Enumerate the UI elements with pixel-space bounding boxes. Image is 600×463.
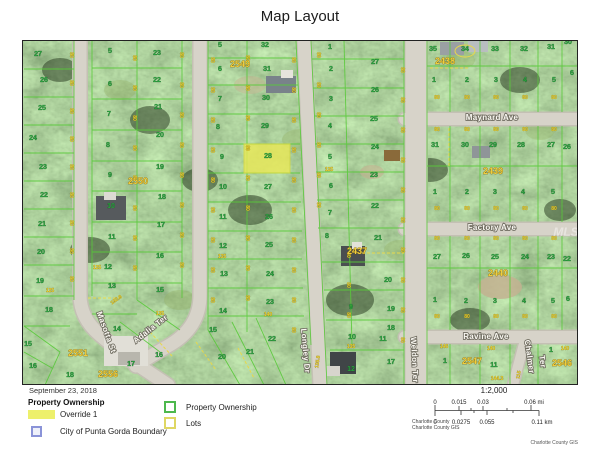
dimension-label: 135 bbox=[347, 344, 356, 350]
scalebar-ticks bbox=[435, 405, 539, 416]
parcel-number: 7 bbox=[218, 96, 222, 103]
parcel-number: 3 bbox=[494, 77, 498, 84]
lot-width-mark: 80 bbox=[209, 267, 215, 273]
parcel-number: 7 bbox=[107, 111, 111, 118]
dimension-label: 146 bbox=[440, 344, 449, 350]
parcel-number: 4 bbox=[523, 77, 527, 84]
lot-width-mark: 80 bbox=[551, 95, 557, 101]
parcel-number: 24 bbox=[521, 254, 529, 261]
lot-width-mark: 80 bbox=[522, 127, 528, 133]
parcel-number: 31 bbox=[263, 66, 271, 73]
parcel-number: 20 bbox=[218, 354, 226, 361]
parcel-number: 33 bbox=[491, 46, 499, 53]
lot-width-mark: 80 bbox=[209, 237, 215, 243]
property-ownership-swatch bbox=[164, 401, 176, 413]
lot-width-mark: 80 bbox=[244, 175, 250, 181]
lot-width-mark: 80 bbox=[68, 136, 74, 142]
lot-width-mark: 80 bbox=[399, 97, 405, 103]
lot-width-mark: 80 bbox=[493, 127, 499, 133]
parcel-number: 8 bbox=[216, 124, 220, 131]
lot-width-mark: 80 bbox=[345, 312, 351, 318]
parcel-number: 4 bbox=[521, 189, 525, 196]
lot-width-mark: 80 bbox=[244, 235, 250, 241]
parcel-number: 15 bbox=[24, 341, 32, 348]
dimension-label: 140 bbox=[487, 346, 496, 352]
parcel-number: 34 bbox=[461, 46, 469, 53]
parcel-number: 8 bbox=[325, 233, 329, 240]
lot-width-mark: 80 bbox=[522, 314, 528, 320]
parcel-number: 1 bbox=[432, 77, 436, 84]
parcel-number: 24 bbox=[266, 271, 274, 278]
parcel-number: 10 bbox=[348, 334, 356, 341]
parcel-number: 1 bbox=[328, 44, 332, 51]
lot-width-mark: 80 bbox=[464, 206, 470, 212]
parcel-number: 30 bbox=[461, 142, 469, 149]
parcel-number: 16 bbox=[156, 253, 164, 260]
scale-ratio: 1:2,000 bbox=[481, 386, 508, 395]
lot-width-mark: 80 bbox=[290, 267, 296, 273]
parcel-number: 5 bbox=[328, 154, 332, 161]
parcel-number: 1 bbox=[443, 358, 447, 365]
lot-width-mark: 80 bbox=[290, 57, 296, 63]
lot-width-mark: 80 bbox=[434, 236, 440, 242]
parcel-number: 23 bbox=[370, 172, 378, 179]
lot-width-mark: 80 bbox=[178, 82, 184, 88]
override-swatch bbox=[28, 410, 55, 419]
parcel-number: 2 bbox=[464, 298, 468, 305]
lot-width-mark: 80 bbox=[68, 80, 74, 86]
credit-left: Charlotte County Charlotte County GIS bbox=[412, 419, 460, 432]
lot-width-mark: 80 bbox=[209, 147, 215, 153]
dimension-label: 125 bbox=[93, 265, 102, 271]
dimension-label: 125 bbox=[325, 167, 334, 173]
parcel-number: 31 bbox=[431, 142, 439, 149]
lot-width-mark: 80 bbox=[209, 117, 215, 123]
lots-label: Lots bbox=[186, 419, 201, 428]
watermark: MLS bbox=[553, 225, 578, 239]
parcel-number: 21 bbox=[38, 221, 46, 228]
lot-width-mark: 80 bbox=[209, 177, 215, 183]
parcel-number: 27 bbox=[264, 184, 272, 191]
block-number: 2549 bbox=[230, 59, 250, 69]
override-label: Override 1 bbox=[60, 410, 97, 419]
parcel-number: 21 bbox=[154, 104, 162, 111]
parcel-number: 19 bbox=[36, 278, 44, 285]
parcel-number: 23 bbox=[266, 299, 274, 306]
legend-title: Property Ownership bbox=[28, 398, 104, 407]
map-frame: 8080808080808080808080808080808080808080… bbox=[22, 40, 578, 385]
parcel-number: 17 bbox=[157, 222, 165, 229]
lot-width-mark: 80 bbox=[551, 206, 557, 212]
parcel-number: 22 bbox=[268, 336, 276, 343]
lot-width-mark: 80 bbox=[315, 82, 321, 88]
parcel-number: 23 bbox=[153, 50, 161, 57]
lot-width-mark: 80 bbox=[290, 147, 296, 153]
parcel-number: 10 bbox=[107, 203, 115, 210]
lot-width-mark: 80 bbox=[178, 262, 184, 268]
parcel-number: 6 bbox=[329, 183, 333, 190]
credit-right: Charlotte County GIS bbox=[470, 440, 578, 446]
lot-width-mark: 80 bbox=[131, 55, 137, 61]
parcel-number: 4 bbox=[328, 123, 332, 130]
map-layout-page: Map Layout bbox=[0, 0, 600, 463]
lot-width-mark: 80 bbox=[315, 202, 321, 208]
parcel-number: 1 bbox=[433, 297, 437, 304]
lot-width-mark: 80 bbox=[434, 95, 440, 101]
punta-gorda-boundary-label: City of Punta Gorda Boundary bbox=[60, 427, 167, 436]
lot-width-mark: 80 bbox=[68, 52, 74, 58]
parcel-number: 17 bbox=[127, 361, 135, 368]
parcel-number: 26 bbox=[40, 77, 48, 84]
parcel-number: 5 bbox=[218, 42, 222, 49]
lot-width-mark: 80 bbox=[131, 85, 137, 91]
lot-width-mark: 80 bbox=[68, 248, 74, 254]
parcel-number: 6 bbox=[570, 70, 574, 77]
street-label: Ravine Ave bbox=[463, 332, 509, 341]
lot-width-mark: 80 bbox=[464, 236, 470, 242]
parcel-number: 5 bbox=[552, 77, 556, 84]
parcel-number: 13 bbox=[108, 283, 116, 290]
lot-width-mark: 80 bbox=[68, 220, 74, 226]
lot-width-mark: 80 bbox=[493, 236, 499, 242]
block-number: 2437 bbox=[347, 246, 367, 256]
lot-width-mark: 80 bbox=[493, 206, 499, 212]
parcel-number: 2 bbox=[465, 189, 469, 196]
dimension-label: 140 bbox=[561, 346, 570, 352]
scale-km-3: 0.11 km bbox=[532, 420, 553, 426]
lot-width-mark: 80 bbox=[493, 314, 499, 320]
lot-width-mark: 80 bbox=[178, 142, 184, 148]
lot-width-mark: 80 bbox=[244, 115, 250, 121]
parcel-number: 4 bbox=[522, 298, 526, 305]
parcel-number: 12 bbox=[104, 264, 112, 271]
parcel-number: 25 bbox=[370, 116, 378, 123]
lot-width-mark: 80 bbox=[178, 112, 184, 118]
parcel-number: 9 bbox=[349, 304, 353, 311]
block-number: 2551 bbox=[68, 348, 88, 358]
lot-width-mark: 80 bbox=[209, 297, 215, 303]
parcel-number: 7 bbox=[328, 210, 332, 217]
parcel-number: 21 bbox=[374, 235, 382, 242]
lot-width-mark: 80 bbox=[315, 52, 321, 58]
lot-width-mark: 80 bbox=[290, 237, 296, 243]
parcel-number: 18 bbox=[387, 325, 395, 332]
block-number: 2556 bbox=[98, 369, 118, 379]
parcel-number: 27 bbox=[371, 59, 379, 66]
lot-width-mark: 80 bbox=[244, 265, 250, 271]
parcel-number: 17 bbox=[387, 359, 395, 366]
parcel-number: 8 bbox=[106, 142, 110, 149]
parcel-number: 15 bbox=[209, 327, 217, 334]
lot-width-mark: 80 bbox=[345, 282, 351, 288]
parcel-number: 22 bbox=[153, 77, 161, 84]
parcel-number: 6 bbox=[566, 296, 570, 303]
lot-width-mark: 80 bbox=[131, 145, 137, 151]
map-svg: 8080808080808080808080808080808080808080… bbox=[22, 40, 578, 385]
parcel-number: 22 bbox=[563, 256, 571, 263]
parcel-number: 14 bbox=[113, 326, 121, 333]
parcel-number: 23 bbox=[39, 164, 47, 171]
parcel-number: 18 bbox=[66, 372, 74, 379]
block-number: 2439 bbox=[483, 166, 503, 176]
lot-width-mark: 80 bbox=[522, 236, 528, 242]
parcel-number: 27 bbox=[547, 142, 555, 149]
lot-width-mark: 80 bbox=[290, 327, 296, 333]
parcel-number: 12 bbox=[347, 366, 355, 373]
credit-left-line2: Charlotte County GIS bbox=[412, 425, 460, 431]
lot-width-mark: 80 bbox=[209, 57, 215, 63]
parcel-number: 21 bbox=[246, 349, 254, 356]
lot-width-mark: 80 bbox=[244, 295, 250, 301]
parcel-number: 16 bbox=[29, 363, 37, 370]
parcel-number: 35 bbox=[429, 46, 437, 53]
lot-width-mark: 80 bbox=[434, 206, 440, 212]
parcel-number: 26 bbox=[265, 214, 273, 221]
lot-width-mark: 80 bbox=[68, 276, 74, 282]
lot-width-mark: 80 bbox=[399, 337, 405, 343]
parcel-number: 28 bbox=[264, 153, 272, 160]
parcel-number: 3 bbox=[493, 189, 497, 196]
lot-width-mark: 80 bbox=[68, 192, 74, 198]
parcel-number: 30 bbox=[262, 95, 270, 102]
block-number: 2440 bbox=[488, 268, 508, 278]
lot-width-mark: 80 bbox=[399, 157, 405, 163]
parcel-number: 16 bbox=[155, 352, 163, 359]
lot-width-mark: 80 bbox=[290, 117, 296, 123]
lot-width-mark: 80 bbox=[131, 205, 137, 211]
parcel-number: 24 bbox=[371, 144, 379, 151]
parcel-number: 15 bbox=[156, 287, 164, 294]
block-number: 2550 bbox=[128, 176, 148, 186]
parcel-number: 26 bbox=[371, 87, 379, 94]
parcel-number: 6 bbox=[108, 81, 112, 88]
lot-width-mark: 80 bbox=[399, 127, 405, 133]
scale-mi-2: 0.03 bbox=[477, 400, 489, 406]
parcel-number: 11 bbox=[219, 214, 227, 221]
parcel-number: 9 bbox=[108, 172, 112, 179]
lot-width-mark: 80 bbox=[399, 217, 405, 223]
property-ownership-label: Property Ownership bbox=[186, 403, 257, 412]
lot-width-mark: 80 bbox=[131, 265, 137, 271]
parcel-number: 20 bbox=[384, 277, 392, 284]
scale-mi-1: 0.015 bbox=[451, 400, 467, 406]
lot-width-mark: 80 bbox=[399, 187, 405, 193]
lot-width-mark: 80 bbox=[290, 207, 296, 213]
parcel-number: 19 bbox=[156, 164, 164, 171]
lot-width-mark: 80 bbox=[209, 87, 215, 93]
lot-width-mark: 80 bbox=[178, 202, 184, 208]
parcel-number: 19 bbox=[387, 306, 395, 313]
street-label: Maynard Ave bbox=[466, 113, 519, 122]
dimension-label: 135 bbox=[218, 254, 227, 260]
lot-width-mark: 80 bbox=[244, 145, 250, 151]
parcel-number: 3 bbox=[493, 298, 497, 305]
lot-width-mark: 80 bbox=[315, 142, 321, 148]
parcel-number: 32 bbox=[261, 42, 269, 49]
lot-width-mark: 80 bbox=[522, 206, 528, 212]
parcel-number: 5 bbox=[108, 48, 112, 55]
street-label: Ter bbox=[537, 355, 548, 369]
lot-width-mark: 80 bbox=[209, 207, 215, 213]
punta-gorda-boundary-swatch bbox=[31, 426, 42, 437]
parcel-number: 31 bbox=[547, 44, 555, 51]
parcel-number: 11 bbox=[108, 234, 116, 241]
lot-width-mark: 80 bbox=[434, 127, 440, 133]
parcel-number: 26 bbox=[462, 253, 470, 260]
parcel-number: 1 bbox=[549, 347, 553, 354]
lot-width-mark: 80 bbox=[315, 172, 321, 178]
parcel-number: 3 bbox=[329, 96, 333, 103]
lot-width-mark: 80 bbox=[290, 87, 296, 93]
parcel-number: 22 bbox=[371, 203, 379, 210]
street-label: Factory Ave bbox=[468, 223, 517, 232]
dimension-label: 125 bbox=[46, 288, 55, 294]
lot-width-mark: 80 bbox=[315, 112, 321, 118]
lot-width-mark: 80 bbox=[244, 85, 250, 91]
parcel-number: 2 bbox=[329, 66, 333, 73]
lot-width-mark: 80 bbox=[522, 95, 528, 101]
lot-width-mark: 80 bbox=[464, 314, 470, 320]
parcel-number: 5 bbox=[551, 189, 555, 196]
parcel-number: 25 bbox=[491, 254, 499, 261]
lot-width-mark: 80 bbox=[551, 127, 557, 133]
lot-width-mark: 80 bbox=[68, 108, 74, 114]
parcel-number: 5 bbox=[551, 298, 555, 305]
parcel-number: 11 bbox=[379, 336, 387, 343]
lot-width-mark: 80 bbox=[178, 52, 184, 58]
parcel-number: 2 bbox=[465, 77, 469, 84]
lot-width-mark: 80 bbox=[551, 314, 557, 320]
parcel-number: 25 bbox=[265, 242, 273, 249]
lot-width-mark: 80 bbox=[399, 307, 405, 313]
parcel-number: 12 bbox=[219, 243, 227, 250]
parcel-number: 32 bbox=[520, 46, 528, 53]
block-number: 2546 bbox=[552, 358, 572, 368]
parcel-number: 11 bbox=[490, 362, 498, 369]
lot-width-mark: 80 bbox=[464, 127, 470, 133]
lot-width-mark: 80 bbox=[464, 95, 470, 101]
lot-width-mark: 80 bbox=[399, 67, 405, 73]
parcel-number: 23 bbox=[547, 254, 555, 261]
parcel-number: 9 bbox=[220, 154, 224, 161]
lot-width-mark: 80 bbox=[290, 177, 296, 183]
parcel-number: 29 bbox=[489, 142, 497, 149]
parcel-number: 18 bbox=[158, 194, 166, 201]
map-date: September 23, 2018 bbox=[29, 386, 97, 395]
page-title: Map Layout bbox=[0, 8, 600, 25]
block-number: 2547 bbox=[462, 356, 482, 366]
lot-width-mark: 80 bbox=[131, 115, 137, 121]
lot-width-mark: 80 bbox=[290, 297, 296, 303]
parcel-number: 25 bbox=[38, 105, 46, 112]
parcel-number: 24 bbox=[29, 135, 37, 142]
parcel-number: 10 bbox=[219, 184, 227, 191]
lot-width-mark: 80 bbox=[178, 232, 184, 238]
scale-km-2: 0.055 bbox=[479, 420, 495, 426]
lot-width-mark: 80 bbox=[68, 164, 74, 170]
parcel-number: 1 bbox=[433, 189, 437, 196]
lot-width-mark: 80 bbox=[434, 314, 440, 320]
parcel-number: 26 bbox=[563, 144, 571, 151]
parcel-number: 27 bbox=[34, 51, 42, 58]
block-number: 2438 bbox=[435, 56, 455, 66]
lot-width-mark: 80 bbox=[399, 247, 405, 253]
parcel-number: 29 bbox=[261, 123, 269, 130]
lots-swatch bbox=[164, 417, 176, 429]
parcel-number: 22 bbox=[40, 192, 48, 199]
parcel-number: 28 bbox=[517, 142, 525, 149]
lot-width-mark: 80 bbox=[493, 95, 499, 101]
dimension-label: 144.3 bbox=[491, 376, 504, 382]
lot-width-mark: 80 bbox=[244, 205, 250, 211]
parcel-number: 18 bbox=[45, 307, 53, 314]
parcel-number: 20 bbox=[156, 132, 164, 139]
dimension-label: 140 bbox=[264, 312, 273, 318]
lot-width-mark: 80 bbox=[131, 235, 137, 241]
scale-mi-3: 0.06 mi bbox=[524, 400, 544, 406]
lot-width-mark: 80 bbox=[399, 277, 405, 283]
parcel-number: 14 bbox=[219, 308, 227, 315]
parcel-number: 20 bbox=[37, 249, 45, 256]
parcel-number: 6 bbox=[218, 66, 222, 73]
parcel-number: 27 bbox=[433, 254, 441, 261]
parcel-number: 13 bbox=[220, 271, 228, 278]
lot-width-mark: 80 bbox=[178, 172, 184, 178]
